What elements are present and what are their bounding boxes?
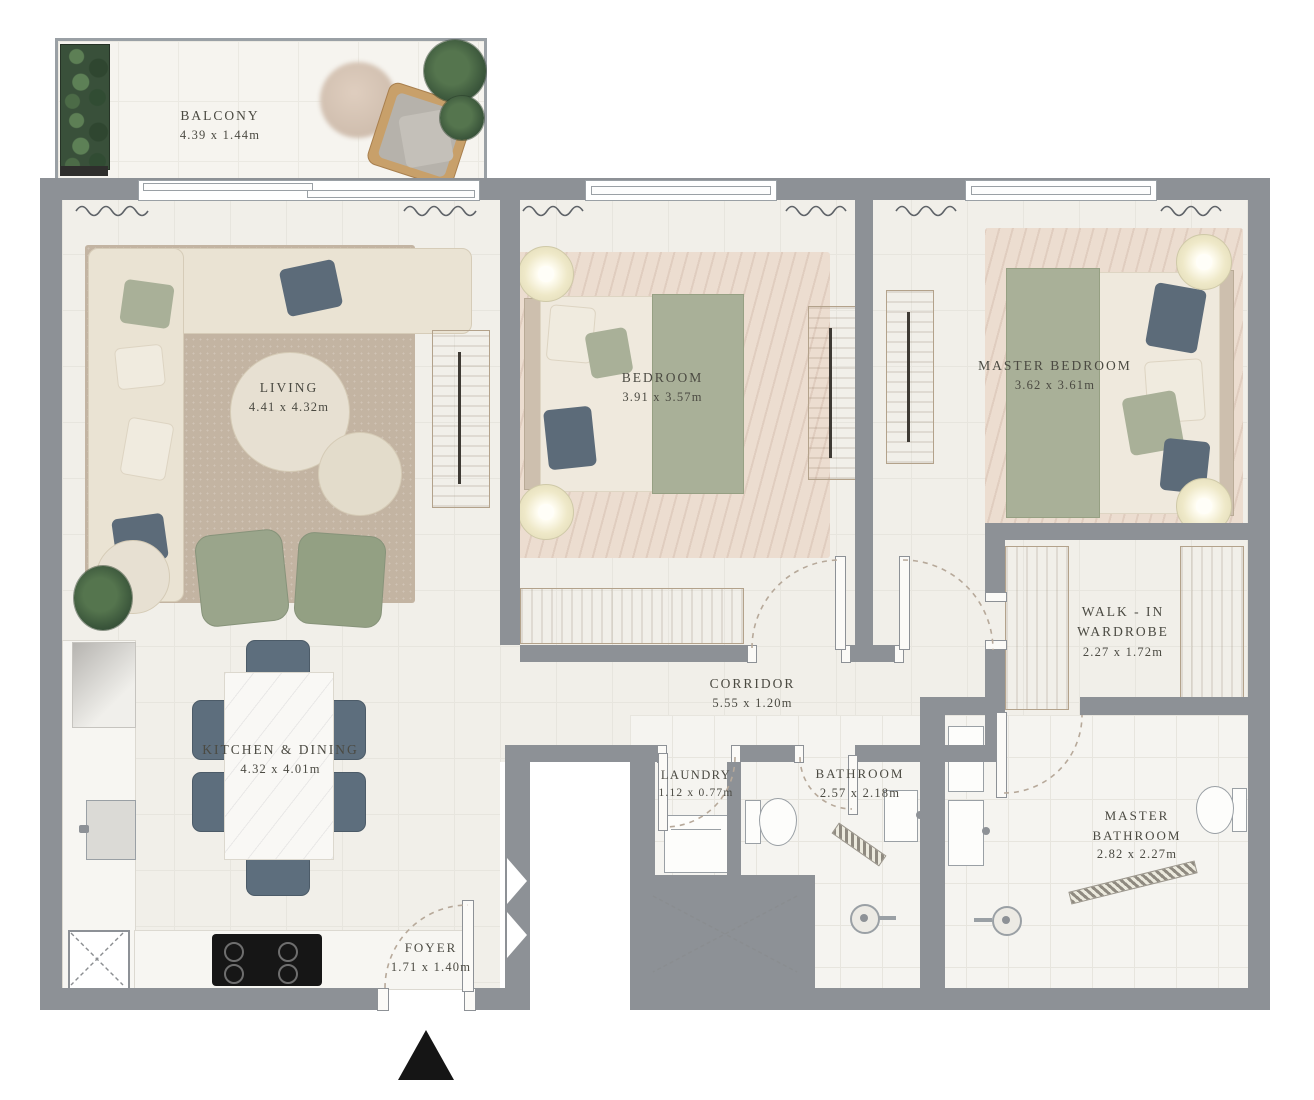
tv-console-living <box>432 330 490 508</box>
master-lamp-top <box>1176 234 1232 290</box>
master-pillow-navy-1 <box>1145 282 1207 354</box>
entry-door-panel <box>462 900 474 992</box>
bedroom-window <box>585 180 777 201</box>
floor-plan: BALCONY 4.39 x 1.44m LIVING 4.41 x 4.32m… <box>0 0 1314 1100</box>
drain-dot <box>1002 916 1010 924</box>
drain-dot <box>860 914 868 922</box>
kitchen-sink <box>86 800 136 860</box>
sofa-pillow-cream-1 <box>114 344 166 391</box>
living-plant <box>74 566 132 630</box>
dining-table <box>224 672 334 860</box>
wall-masterbath-top-right <box>1080 697 1248 715</box>
master-toilet-tank <box>1232 788 1247 832</box>
faucet-icon <box>982 827 990 835</box>
burner-icon <box>278 964 298 984</box>
wall-bedroom-bottom <box>520 645 755 662</box>
kitchen-shaft <box>68 930 130 992</box>
shower-arm <box>878 916 896 920</box>
door-jamb <box>747 645 757 663</box>
door-jamb <box>731 745 741 763</box>
fridge <box>72 642 136 728</box>
bedroom-cabinet <box>520 588 744 644</box>
bedroom-lamp-top <box>518 246 574 302</box>
wall-living-bedroom <box>500 198 520 645</box>
foyer-wall-arrow-2 <box>507 912 527 958</box>
bedroom-lamp-bottom <box>518 484 574 540</box>
wall-foyer-top <box>505 745 663 762</box>
console-handle-master <box>907 312 910 442</box>
washing-machine <box>664 815 728 873</box>
wardrobe-closet-right <box>1180 546 1244 710</box>
burner-icon <box>224 942 244 962</box>
shower-arm <box>974 918 992 922</box>
wall-left <box>40 178 62 1010</box>
wall-shaft-block <box>630 875 815 988</box>
cooktop <box>212 934 322 986</box>
master-window <box>965 180 1157 201</box>
planter-box <box>60 166 108 176</box>
master-shower-drain <box>992 906 1022 936</box>
tv-console-master <box>886 290 934 464</box>
door-jamb <box>985 640 1007 650</box>
wall-masterbed-bottom <box>985 523 1248 540</box>
door-jamb <box>985 592 1007 602</box>
master-window-pane <box>971 186 1151 195</box>
wall-bottom-right <box>630 988 1270 1010</box>
wall-laundry-bath <box>727 762 741 882</box>
coffee-table-small <box>318 432 402 516</box>
entry-arrow-icon <box>398 1030 454 1080</box>
washer-panel <box>671 821 721 830</box>
slider-pane-left <box>143 183 313 191</box>
wall-bath-masterbath <box>920 697 945 988</box>
faucet-icon <box>79 825 89 833</box>
bathroom-door-panel <box>848 755 858 815</box>
master-vanity-2 <box>948 800 984 866</box>
door-jamb <box>794 745 804 763</box>
balcony-sliding-door <box>138 180 480 201</box>
vertical-garden <box>60 44 110 170</box>
wall-bottom-left <box>40 988 385 1010</box>
wall-right <box>1248 178 1270 1010</box>
sofa-pillow-green <box>119 279 175 330</box>
balcony-plant-large <box>424 40 486 102</box>
bedroom-window-pane <box>591 186 771 195</box>
balcony-plant-small <box>440 96 484 140</box>
foyer-wall-arrow-1 <box>507 858 527 904</box>
master-blanket <box>1006 268 1100 518</box>
laundry-door-panel <box>658 753 668 831</box>
burner-icon <box>278 942 298 962</box>
wardrobe-closet-left <box>1005 546 1069 710</box>
slider-pane-right <box>307 190 475 198</box>
burner-icon <box>224 964 244 984</box>
wall-wardrobe-left-upper <box>985 540 1005 598</box>
bed-pillow-navy <box>543 406 597 471</box>
masterbath-door-panel <box>996 712 1007 798</box>
pouf-1 <box>193 528 290 629</box>
bed-pillow-green <box>584 327 633 380</box>
bedroom-blanket <box>652 294 744 494</box>
wall-bottom-foyer <box>472 988 530 1010</box>
pouf-2 <box>293 531 387 629</box>
console-handle-living <box>458 352 461 484</box>
bathroom-sink <box>884 790 918 842</box>
console-handle-bedroom <box>829 328 832 458</box>
bathroom-shower-drain <box>850 904 880 934</box>
wall-bedroom-master <box>855 198 873 645</box>
wall-masterbath-top-left <box>945 697 1000 715</box>
bedroom-door-panel <box>835 556 846 650</box>
door-jamb <box>377 988 389 1011</box>
wall-corridor-bottom-2 <box>737 745 800 762</box>
tv-console-bedroom <box>808 306 856 480</box>
master-door-panel <box>899 556 910 650</box>
